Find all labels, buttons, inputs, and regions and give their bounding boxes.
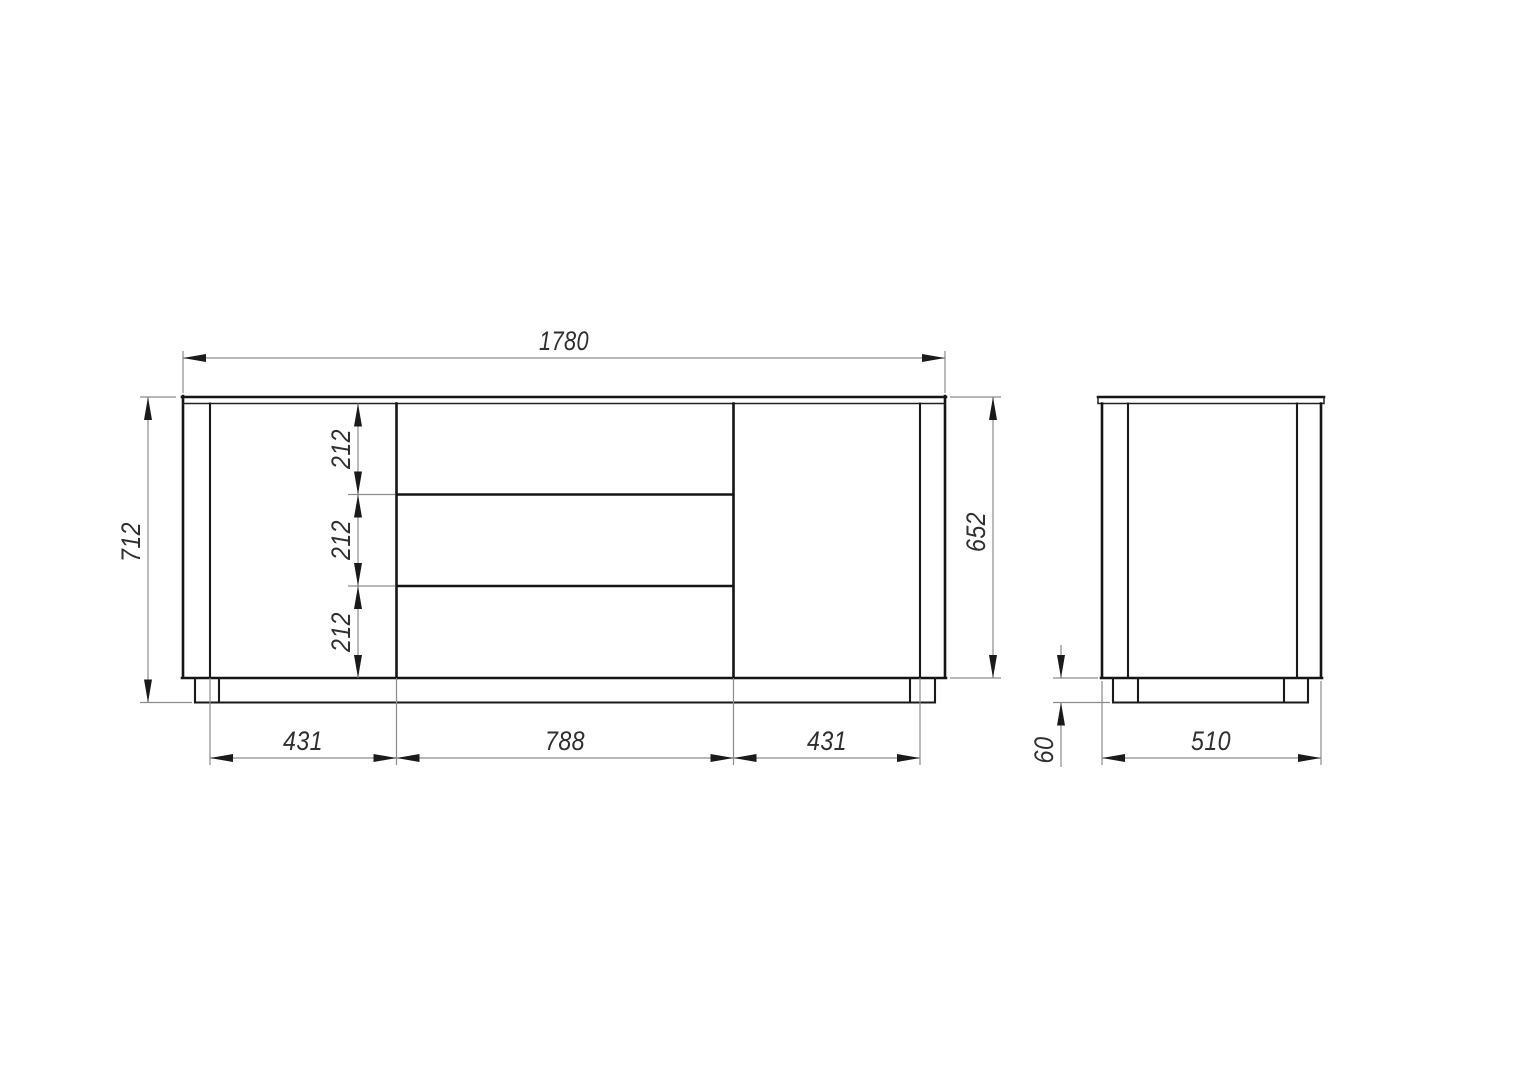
dim-label-section-left: 431 (283, 726, 323, 756)
dim-total-width-lines (183, 351, 945, 393)
front-view: 1780 712 652 212 212 212 (116, 326, 1001, 765)
dim-plinth-height-arrows (1057, 655, 1065, 726)
dim-plinth-height: 60 (1029, 645, 1110, 767)
dim-depth: 510 (1102, 681, 1321, 765)
drawing-canvas: 1780 712 652 212 212 212 (0, 0, 1519, 1080)
dim-total-width: 1780 (183, 326, 945, 393)
side-view: 510 60 (1029, 397, 1324, 767)
dim-label-total-height: 712 (116, 522, 146, 562)
front-carcass-outline (182, 396, 946, 678)
dim-label-drawer-2: 212 (326, 520, 356, 561)
dim-label-drawer-1: 212 (326, 429, 356, 470)
front-plinth (195, 678, 935, 703)
dim-section-widths: 431 788 431 (210, 678, 920, 765)
dim-label-depth: 510 (1191, 726, 1231, 756)
dim-drawer-heights: 212 212 212 (326, 404, 395, 679)
technical-drawing: 1780 712 652 212 212 212 (0, 0, 1519, 1080)
dim-label-body-height: 652 (961, 512, 991, 552)
dim-total-height: 712 (116, 397, 192, 703)
side-plinth (1113, 678, 1308, 703)
front-drawer-block (397, 404, 734, 679)
front-door-gap-lines (210, 404, 920, 679)
dim-body-height: 652 (950, 397, 1001, 678)
dim-label-section-middle: 788 (545, 726, 585, 756)
dim-label-drawer-3: 212 (326, 612, 356, 653)
dim-label-plinth-height: 60 (1029, 737, 1059, 764)
side-inner-lines (1128, 404, 1297, 679)
side-body-outline (1101, 404, 1322, 679)
dim-label-section-right: 431 (807, 726, 847, 756)
dim-label-total-width: 1780 (539, 326, 589, 356)
